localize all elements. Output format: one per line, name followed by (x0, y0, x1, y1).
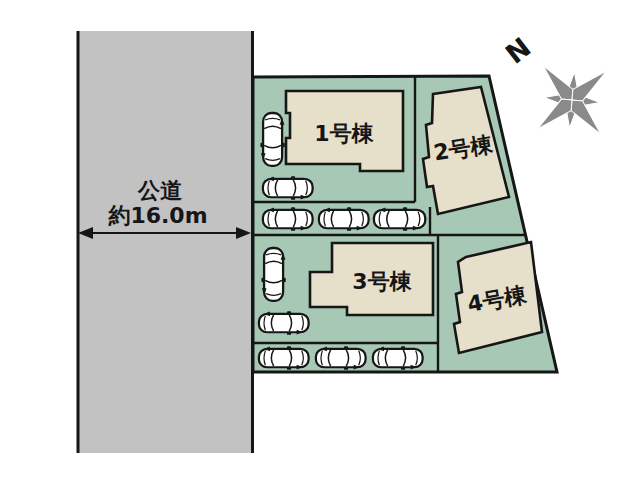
road-surface (77, 31, 253, 453)
car-3 (263, 207, 313, 231)
building-3-label: 3号棟 (352, 269, 412, 294)
car-10 (373, 346, 423, 370)
building-1-label: 1号棟 (314, 121, 374, 146)
site-plan-canvas: 公道 約16.0m 1号棟 2号棟 3号棟 4号棟 (0, 0, 637, 480)
car-9 (316, 346, 366, 370)
car-5 (374, 207, 425, 231)
car-1 (260, 113, 284, 166)
road-width-label: 約16.0m (107, 203, 207, 228)
road-name-label: 公道 (137, 178, 183, 203)
car-8 (259, 346, 309, 370)
car-2 (263, 176, 313, 200)
compass-north-label: N (500, 31, 537, 69)
car-4 (319, 207, 369, 231)
parcel: 1号棟 2号棟 3号棟 4号棟 (253, 76, 557, 372)
car-7 (259, 311, 309, 335)
car-6 (261, 248, 285, 301)
road: 公道 約16.0m (77, 31, 253, 453)
compass: N (500, 31, 636, 163)
